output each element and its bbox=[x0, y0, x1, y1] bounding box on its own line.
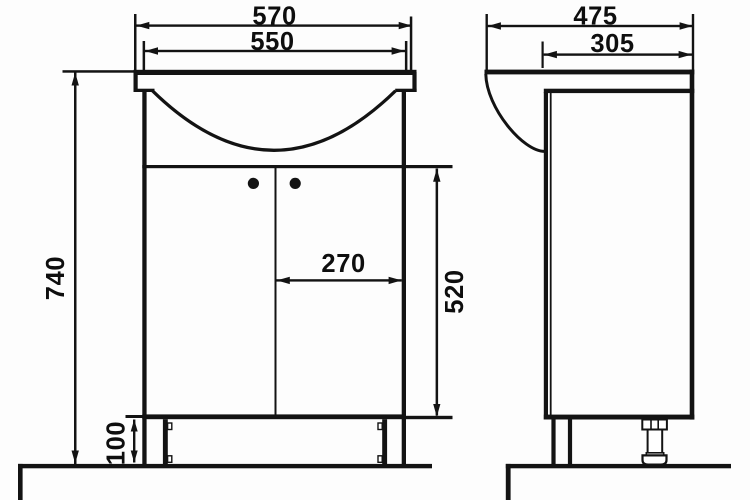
svg-text:305: 305 bbox=[590, 30, 634, 58]
svg-text:550: 550 bbox=[250, 28, 294, 56]
svg-text:475: 475 bbox=[573, 3, 617, 31]
svg-text:740: 740 bbox=[42, 256, 70, 300]
svg-text:270: 270 bbox=[321, 250, 365, 278]
svg-text:520: 520 bbox=[441, 269, 469, 313]
svg-text:100: 100 bbox=[103, 421, 131, 465]
svg-text:570: 570 bbox=[252, 2, 296, 30]
